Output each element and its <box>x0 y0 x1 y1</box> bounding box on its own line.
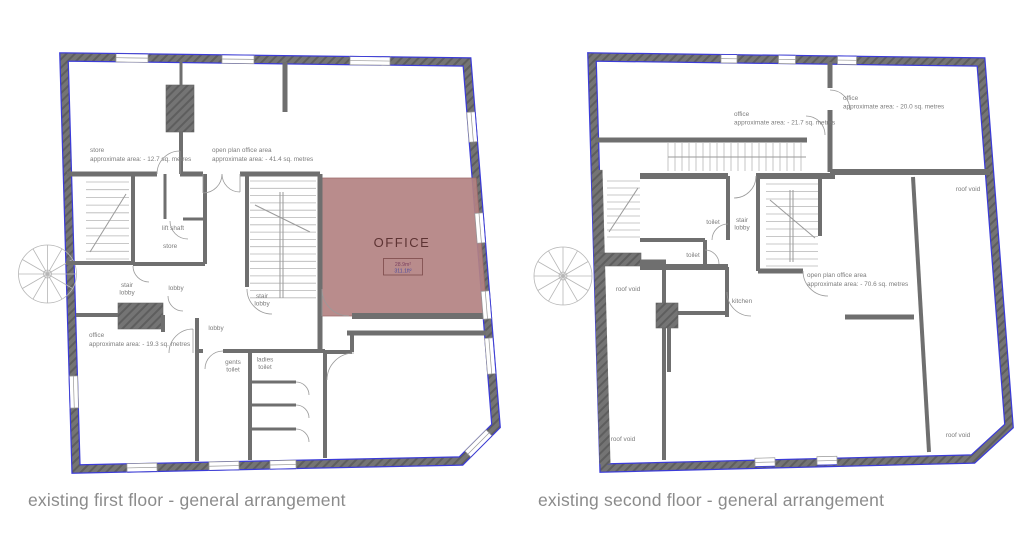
second-floor-stairs <box>607 143 818 266</box>
ladies-label2: toilet <box>258 364 272 371</box>
store-area-label: approximate area: - 12.7 sq. metres <box>90 156 191 163</box>
wall-block <box>656 303 678 328</box>
toilet1-label: toilet <box>706 219 720 226</box>
office21-area-label: approximate area: - 21.7 sq. metres <box>734 120 835 127</box>
stair-lobby1-label: stair <box>121 282 134 289</box>
roof-void-left-label: roof void <box>616 286 641 293</box>
roof-void-bl-label: roof void <box>611 436 636 443</box>
stair-lobby-label: stair <box>736 217 749 224</box>
floor-plan-sheet: store approximate area: - 12.7 sq. metre… <box>0 0 1024 555</box>
store2-label: store <box>163 243 178 250</box>
lift-shaft-label: lift shaft <box>162 225 184 232</box>
toilet2-label: toilet <box>686 252 700 259</box>
store-label: store <box>90 147 105 154</box>
open-plan-area-label: approximate area: - 41.4 sq. metres <box>212 156 313 163</box>
ladies-label: ladies <box>257 357 274 364</box>
wall-block <box>595 253 641 266</box>
office-room-title: OFFICE <box>374 235 431 250</box>
stair-lobby-label2: lobby <box>734 225 750 232</box>
stair-lobby1-label2: lobby <box>119 290 135 297</box>
lift-shaft-block <box>166 85 194 132</box>
open-plan2-label: open plan office area <box>807 272 867 279</box>
office-area-m2: 28.9m² <box>395 262 411 268</box>
office-area-label: approximate area: - 19.3 sq. metres <box>89 341 190 348</box>
second-floor-caption: existing second floor - general arrangem… <box>538 490 884 511</box>
gents-label: gents <box>225 359 241 366</box>
gents-label2: toilet <box>226 367 240 374</box>
open-plan-label: open plan office area <box>212 147 272 154</box>
roof-void-br-label: roof void <box>946 432 971 439</box>
office20-label: office <box>843 95 859 102</box>
chimney-block <box>118 303 163 329</box>
open-plan2-area-label: approximate area: - 70.6 sq. metres <box>807 281 908 288</box>
roof-void-tr-label: roof void <box>956 186 981 193</box>
lobby1-label: lobby <box>168 285 184 292</box>
second-floor-plan: office approximate area: - 20.0 sq. metr… <box>534 54 1009 468</box>
office-label: office <box>89 332 105 339</box>
spiral-stair-icon <box>534 247 592 305</box>
first-floor-caption: existing first floor - general arrangeme… <box>28 490 346 511</box>
spiral-stair-icon <box>19 245 77 303</box>
kitchen-label: kitchen <box>732 298 753 305</box>
office20-area-label: approximate area: - 20.0 sq. metres <box>843 104 944 111</box>
plans-drawing: store approximate area: - 12.7 sq. metre… <box>0 0 1024 555</box>
stair-lobby2-label2: lobby <box>254 301 270 308</box>
lobby2-label: lobby <box>208 325 224 332</box>
stair-lobby2-label: stair <box>256 293 269 300</box>
first-floor-stairs <box>86 181 316 298</box>
first-floor-plan: store approximate area: - 12.7 sq. metre… <box>19 54 497 473</box>
office-area-ft2: 311.1ft² <box>394 269 411 275</box>
office21-label: office <box>734 111 750 118</box>
